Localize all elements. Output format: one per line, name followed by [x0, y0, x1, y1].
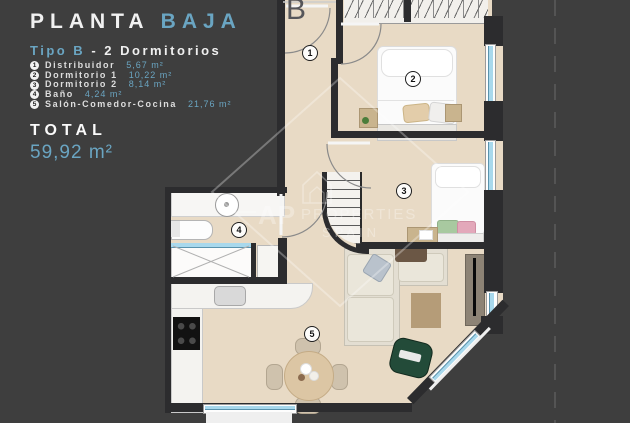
legend-bullet-5: 5	[30, 100, 39, 109]
right-wall	[484, 16, 503, 46]
nightstand-plant	[362, 117, 369, 124]
total-value: 59,92 m²	[30, 142, 113, 164]
room1-room2-wall	[331, 58, 338, 138]
legend-bullet-1: 1	[30, 61, 39, 70]
title-primary: PLANTA	[30, 10, 149, 33]
bathroom-top-wall	[165, 187, 287, 193]
bed-cushion-beige	[402, 103, 431, 124]
legend-name: Baño	[45, 89, 74, 99]
hall-left-wall	[277, 0, 285, 196]
shower-tray	[171, 243, 253, 281]
tv-screen	[473, 258, 476, 316]
hall-stairs-wall	[336, 0, 343, 64]
right-wall	[484, 101, 503, 141]
window-dormitorio2	[485, 140, 496, 194]
room2-room3-wall	[331, 131, 503, 138]
legend-bullet-2: 2	[30, 71, 39, 80]
stair-treads	[327, 172, 362, 244]
legend-area: 5,67 m²	[126, 60, 164, 70]
legend-item-salon: 5Salón-Comedor-Cocina21,76 m²	[30, 100, 270, 110]
shower-glass	[171, 243, 251, 248]
legend-bullet-4: 4	[30, 90, 39, 99]
legend-bullet-3: 3	[30, 81, 39, 90]
title-accent: BAJA	[161, 10, 242, 33]
desk-paper	[419, 230, 433, 240]
toilet-tank	[171, 221, 180, 237]
dormitorio2-pillow	[435, 166, 481, 188]
window-dormitorio1	[485, 44, 496, 104]
legend-area: 21,76 m²	[188, 99, 232, 109]
bathroom-bottom-wall	[165, 277, 287, 284]
window-sill	[206, 412, 292, 423]
room3-living-wall	[356, 242, 503, 249]
legend-name: Distribuidor	[45, 60, 115, 70]
room-label-3: 3	[396, 183, 412, 199]
room-label-4: 4	[231, 222, 247, 238]
room-label-5: 5	[304, 326, 320, 342]
bathroom-closet	[257, 245, 280, 280]
ottoman-rug	[411, 293, 441, 328]
sink-drain	[224, 202, 229, 207]
floor-plan-page: PLANTA BAJA Tipo B - 2 Dormitorios 1Dist…	[0, 0, 630, 423]
bed-fold-line	[378, 100, 454, 101]
room-label-2: 2	[405, 71, 421, 87]
window-glass	[205, 406, 295, 410]
legend-name: Dormitorio 2	[45, 79, 118, 89]
table-plate	[309, 371, 319, 381]
kitchen-left-wall	[165, 189, 171, 413]
legend-name: Dormitorio 1	[45, 70, 118, 80]
total-label: TOTAL	[30, 122, 107, 140]
legend-area: 8,14 m²	[129, 79, 167, 89]
window-glass	[488, 142, 493, 192]
stairs-hatch	[344, 0, 488, 18]
bathroom-right-wall	[278, 238, 287, 284]
kitchen-cooktop	[173, 317, 200, 350]
dining-chair	[266, 364, 283, 390]
window-glass	[488, 46, 493, 102]
plan-subtitle: Tipo B - 2 Dormitorios	[30, 43, 221, 58]
room-label-1: 1	[302, 45, 318, 61]
stairs-divider-wall	[404, 0, 411, 22]
nightstand-right	[445, 104, 462, 122]
right-wall	[484, 190, 503, 293]
room-legend: 1Distribuidor5,67 m² 2Dormitorio 110,22 …	[30, 61, 270, 109]
page-title: PLANTA BAJA	[30, 10, 242, 34]
legend-area: 4,24 m²	[85, 89, 123, 99]
sofa-cushion	[347, 297, 394, 342]
stairs-top	[344, 0, 488, 24]
kitchen-sink	[214, 286, 246, 306]
subtitle-type: Tipo B	[30, 43, 85, 58]
block-label: B	[286, 0, 307, 27]
legend-area: 10,22 m²	[129, 70, 173, 80]
subtitle-rest: - 2 Dormitorios	[91, 43, 221, 58]
table-decor	[298, 374, 305, 381]
shower-divider-wall	[251, 243, 256, 279]
legend-name: Salón-Comedor-Cocina	[45, 99, 177, 109]
